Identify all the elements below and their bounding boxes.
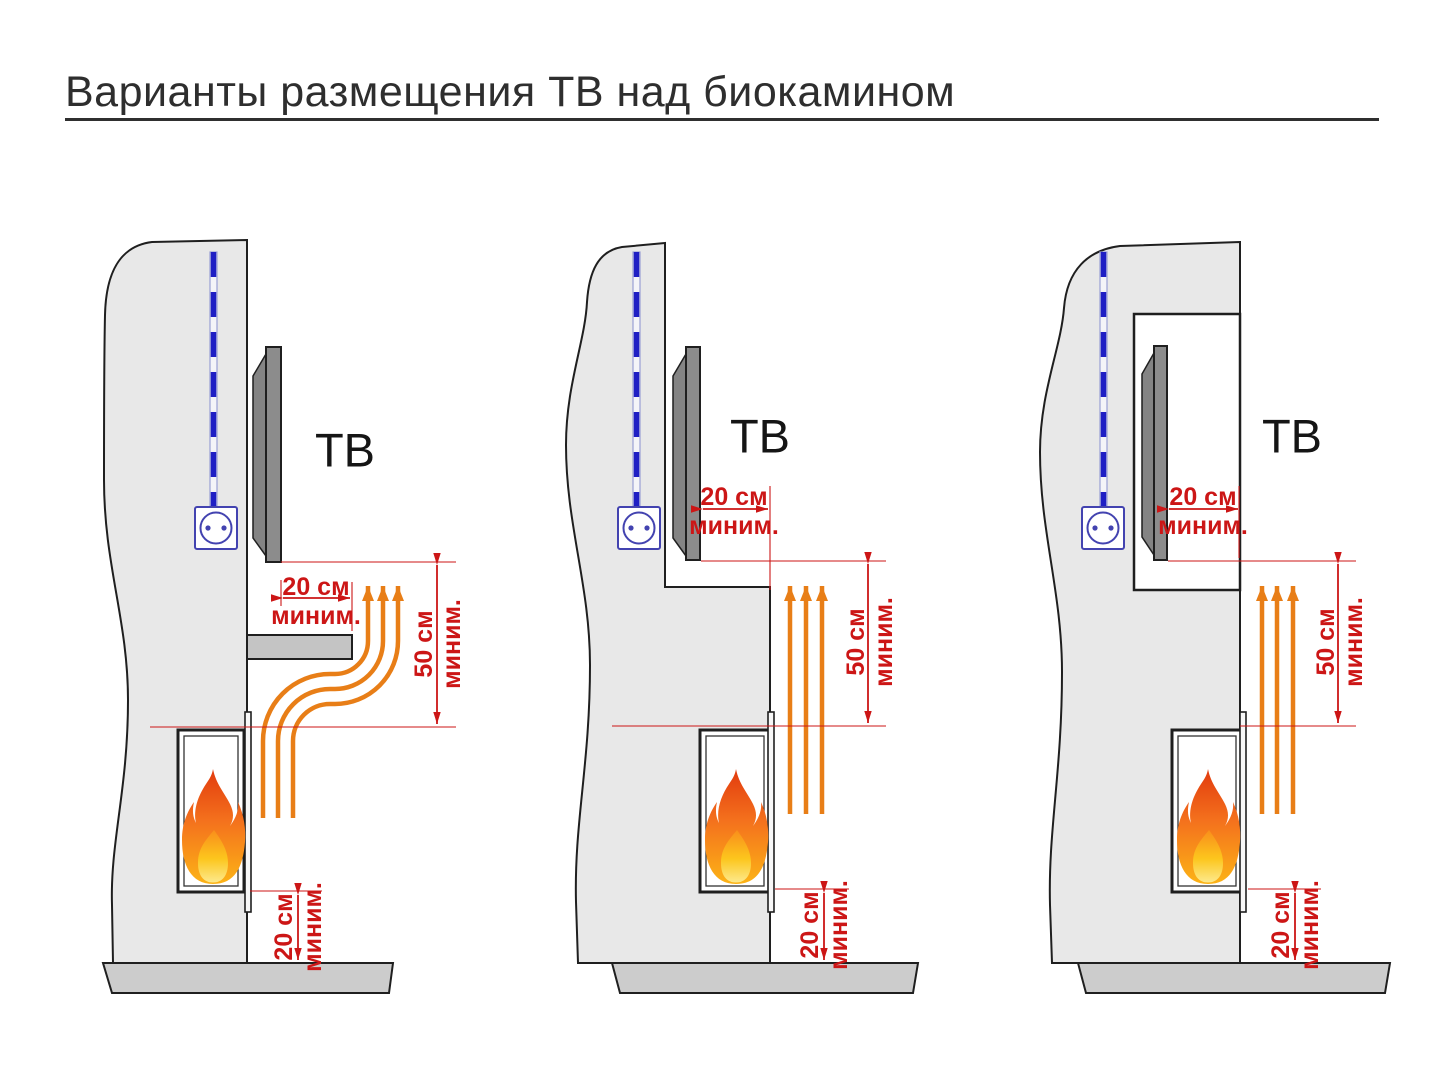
dim-floor-value: 20 см	[1267, 891, 1295, 958]
power-cable	[633, 252, 640, 506]
tv-label: ТВ	[1262, 410, 1322, 463]
dim-20cm-qualifier: миним.	[271, 602, 361, 630]
heat-arrows	[790, 586, 822, 814]
power-outlet-icon	[1082, 507, 1124, 549]
dim-20cm-value: 20 см	[1169, 483, 1236, 511]
dim-50cm-value: 50 см	[410, 610, 438, 677]
fireplace	[1172, 712, 1246, 912]
protective-shelf	[247, 635, 352, 659]
panel-tv-in-wall-niche: 20 см миним. 50 см миним. 20 см миним. Т…	[1040, 242, 1390, 993]
panel-tv-on-recessed-wall-step: 20 см миним. 50 см миним. 20 см миним. Т…	[566, 243, 918, 993]
dim-floor-value: 20 см	[270, 893, 298, 960]
panel-tv-above-protective-shelf: 20 см миним. 50 см миним. 20 см миним. Т…	[103, 240, 466, 993]
dim-floor-value: 20 см	[796, 891, 824, 958]
fireplace-glass	[245, 712, 251, 912]
placement-diagram: 20 см миним. 50 см миним. 20 см миним. Т…	[0, 0, 1440, 1080]
fireplace-glass	[768, 712, 774, 912]
dim-50cm-qualifier: миним.	[870, 597, 898, 687]
dim-50cm-value: 50 см	[1312, 608, 1340, 675]
dim-50cm-qualifier: миним.	[438, 599, 466, 689]
fireplace	[178, 712, 251, 912]
dim-20cm-value: 20 см	[700, 483, 767, 511]
power-cable	[210, 252, 217, 506]
dim-20cm-qualifier: миним.	[1158, 512, 1248, 540]
dim-20cm-qualifier: миним.	[689, 512, 779, 540]
fireplace-glass	[1240, 712, 1246, 912]
dim-floor-qualifier: миним.	[1296, 880, 1324, 970]
floor-slab	[103, 963, 393, 993]
fireplace	[700, 712, 774, 912]
tv-label: ТВ	[315, 424, 375, 477]
floor-slab	[1078, 963, 1390, 993]
tv-label: ТВ	[730, 410, 790, 463]
dim-20cm-value: 20 см	[282, 573, 349, 601]
dim-50cm-qualifier: миним.	[1340, 597, 1368, 687]
power-cable	[1100, 252, 1107, 506]
dim-50cm-value: 50 см	[842, 608, 870, 675]
dim-floor-qualifier: миним.	[825, 880, 853, 970]
floor-slab	[612, 963, 918, 993]
power-outlet-icon	[195, 507, 237, 549]
power-outlet-icon	[618, 507, 660, 549]
dim-floor-qualifier: миним.	[299, 882, 327, 972]
heat-arrows	[1262, 586, 1293, 814]
tv-side-view	[253, 347, 281, 562]
diagram-stage: Варианты размещения ТВ над биокамином	[0, 0, 1440, 1080]
